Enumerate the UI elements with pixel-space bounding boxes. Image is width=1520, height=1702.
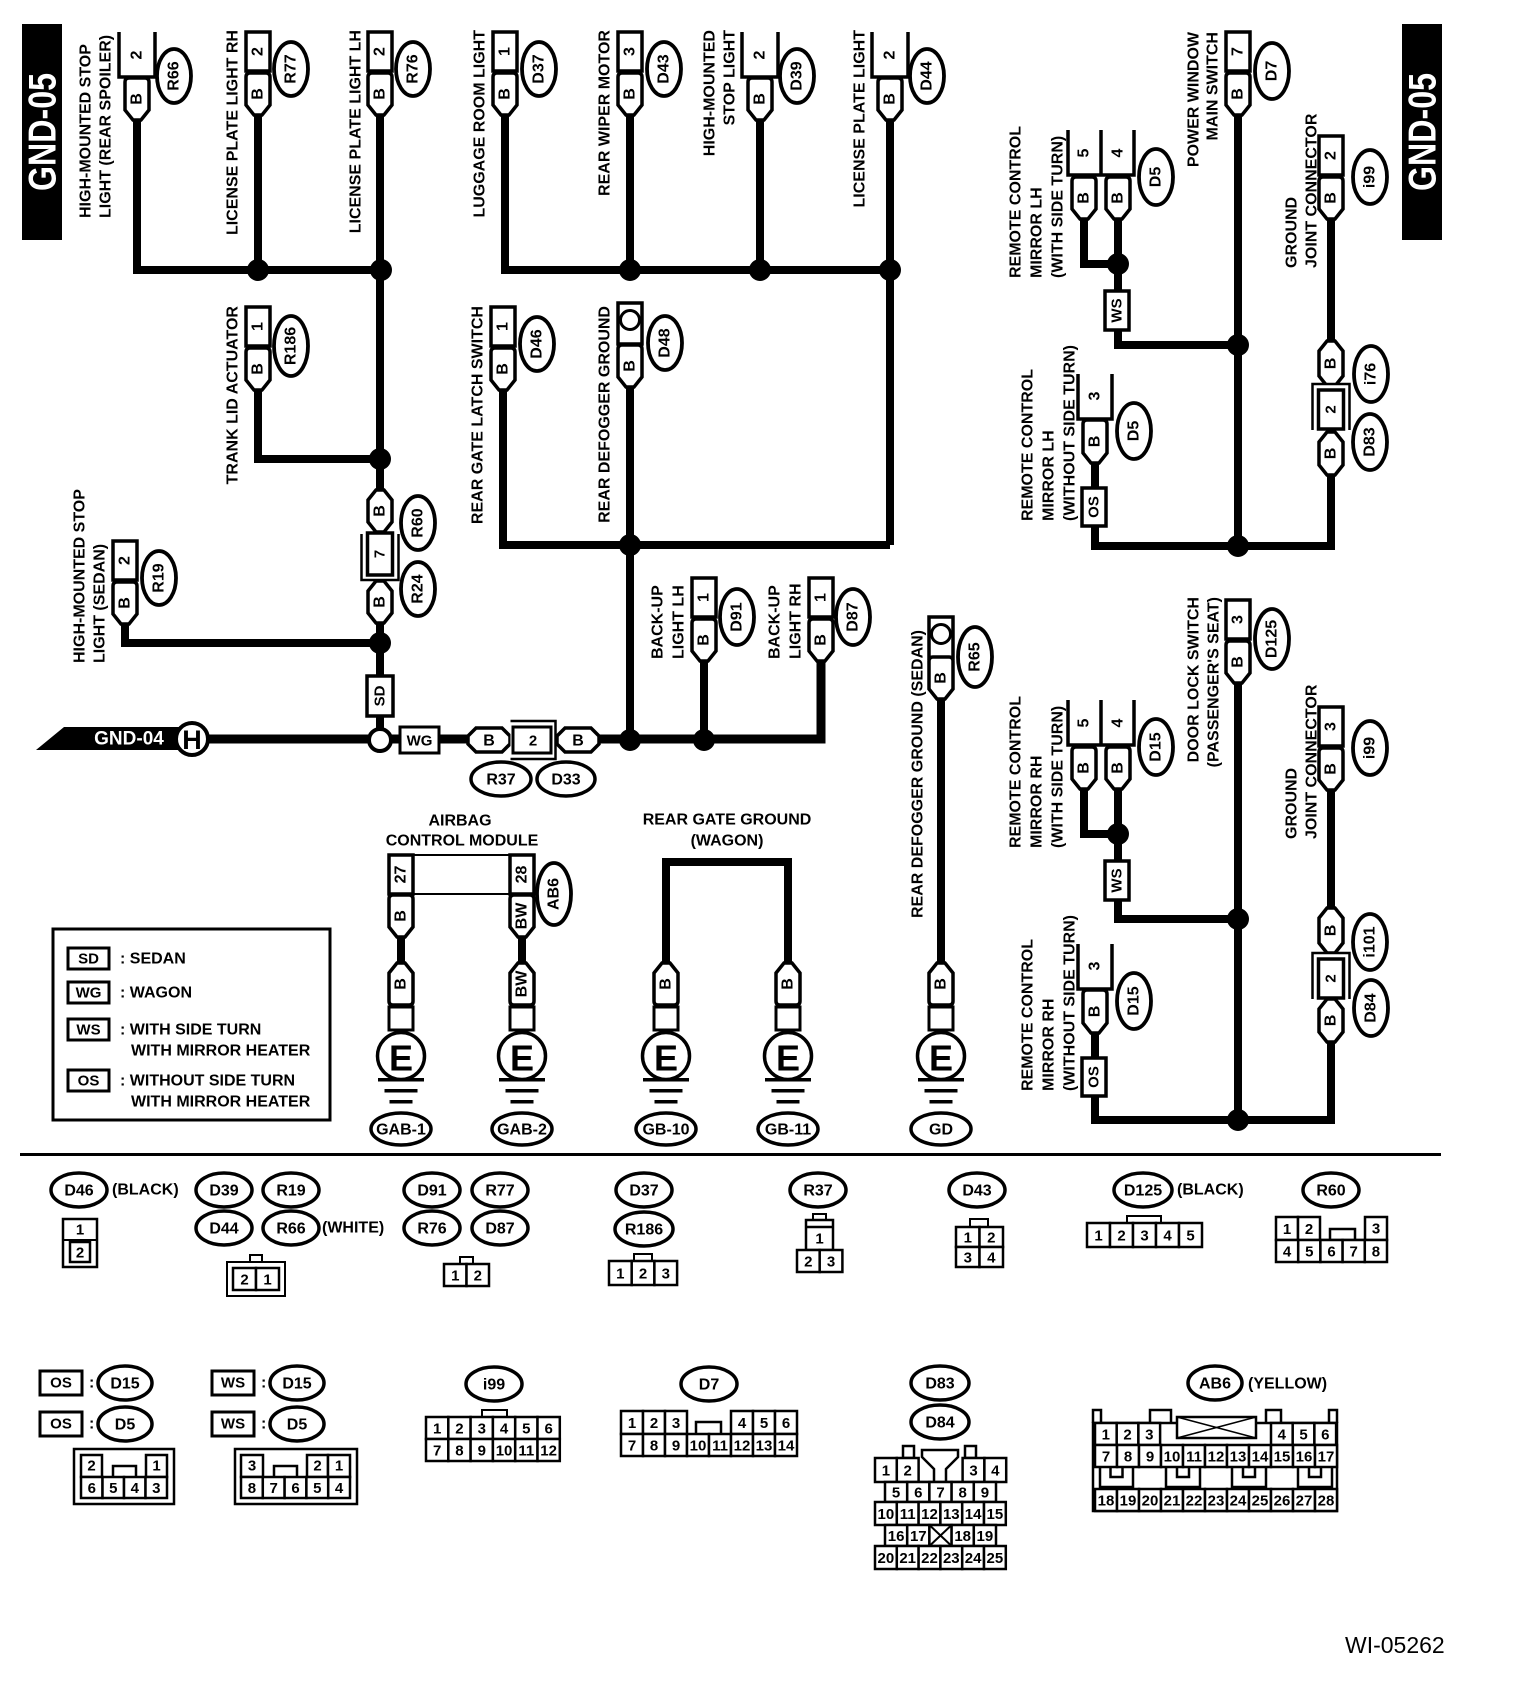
svg-text:WITH MIRROR HEATER: WITH MIRROR HEATER xyxy=(131,1094,311,1111)
svg-text:5: 5 xyxy=(1076,718,1093,727)
svg-text:i101: i101 xyxy=(1362,926,1379,957)
svg-text:3: 3 xyxy=(1230,615,1247,624)
svg-text:1: 1 xyxy=(696,593,713,602)
svg-text:28: 28 xyxy=(514,866,531,884)
svg-text:R60: R60 xyxy=(410,508,427,537)
svg-text:D87: D87 xyxy=(845,602,862,631)
svg-text:LIGHT (REAR SPOILER): LIGHT (REAR SPOILER) xyxy=(98,35,115,218)
svg-text:7: 7 xyxy=(372,550,389,558)
svg-text:20: 20 xyxy=(878,1550,895,1567)
svg-text:GND-05: GND-05 xyxy=(1402,73,1445,191)
svg-text:23: 23 xyxy=(943,1550,960,1567)
svg-text:WS: WS xyxy=(76,1022,100,1039)
svg-text:B: B xyxy=(1076,192,1093,204)
svg-text:i99: i99 xyxy=(1362,737,1379,759)
svg-text:4: 4 xyxy=(738,1415,747,1432)
svg-text:4: 4 xyxy=(335,1480,344,1497)
svg-text:GND-05: GND-05 xyxy=(22,73,65,191)
svg-text:: WITHOUT SIDE TURN: : WITHOUT SIDE TURN xyxy=(120,1073,295,1090)
svg-text:D5: D5 xyxy=(1148,167,1165,188)
svg-text:R77: R77 xyxy=(485,1183,514,1200)
svg-text:3: 3 xyxy=(969,1463,977,1480)
svg-text:WS: WS xyxy=(1109,868,1126,892)
svg-text:GB-10: GB-10 xyxy=(642,1122,689,1139)
svg-text:MIRROR RH: MIRROR RH xyxy=(1029,756,1046,848)
svg-text:4: 4 xyxy=(1110,718,1127,727)
svg-text:REAR DEFOGGER GROUND (SEDAN): REAR DEFOGGER GROUND (SEDAN) xyxy=(910,630,927,918)
svg-text:MIRROR RH: MIRROR RH xyxy=(1041,999,1058,1091)
svg-text:B: B xyxy=(1087,1006,1104,1018)
svg-text:WG: WG xyxy=(76,985,102,1002)
svg-text:REAR GATE GROUND: REAR GATE GROUND xyxy=(643,812,812,829)
svg-text:12: 12 xyxy=(921,1506,938,1523)
svg-text:(YELLOW): (YELLOW) xyxy=(1248,1376,1327,1393)
svg-text:MIRROR LH: MIRROR LH xyxy=(1029,187,1046,278)
svg-text:GAB-1: GAB-1 xyxy=(376,1122,426,1139)
svg-text:10: 10 xyxy=(690,1438,707,1455)
svg-text:16: 16 xyxy=(888,1528,905,1545)
svg-text:16: 16 xyxy=(1296,1449,1313,1466)
svg-text:3: 3 xyxy=(1140,1228,1148,1245)
svg-text:TRANK LID ACTUATOR: TRANK LID ACTUATOR xyxy=(225,306,242,485)
svg-text:R65: R65 xyxy=(967,642,984,671)
svg-text:D91: D91 xyxy=(729,602,746,631)
svg-text:B: B xyxy=(1230,88,1247,100)
svg-text:20: 20 xyxy=(1142,1493,1159,1510)
svg-text:B: B xyxy=(495,363,512,375)
svg-text:OS: OS xyxy=(78,1073,100,1090)
svg-text:(BLACK): (BLACK) xyxy=(112,1182,179,1199)
svg-text:2: 2 xyxy=(455,1421,463,1438)
svg-text:1: 1 xyxy=(964,1230,972,1247)
svg-text:D125: D125 xyxy=(1124,1183,1162,1200)
svg-text:2: 2 xyxy=(87,1458,95,1475)
svg-text:R76: R76 xyxy=(417,1221,446,1238)
svg-text:D125: D125 xyxy=(1264,620,1281,658)
svg-text:4: 4 xyxy=(1278,1427,1287,1444)
svg-text:5: 5 xyxy=(892,1485,900,1502)
svg-text:3: 3 xyxy=(478,1421,486,1438)
svg-text:REAR GATE LATCH SWITCH: REAR GATE LATCH SWITCH xyxy=(470,306,487,524)
svg-text:2: 2 xyxy=(650,1415,658,1432)
svg-text:GAB-2: GAB-2 xyxy=(497,1122,547,1139)
svg-text:E: E xyxy=(389,1038,413,1079)
svg-text:DOOR LOCK SWITCH: DOOR LOCK SWITCH xyxy=(1186,597,1203,762)
svg-text:B: B xyxy=(1323,763,1340,775)
svg-text:REMOTE CONTROL: REMOTE CONTROL xyxy=(1008,696,1025,848)
svg-text:B: B xyxy=(372,505,389,517)
svg-text:21: 21 xyxy=(1164,1493,1181,1510)
svg-text:POWER WINDOW: POWER WINDOW xyxy=(1186,31,1203,167)
svg-text:REMOTE CONTROL: REMOTE CONTROL xyxy=(1020,939,1037,1091)
svg-text:22: 22 xyxy=(921,1550,938,1567)
svg-text:B: B xyxy=(497,88,514,100)
svg-text:13: 13 xyxy=(1230,1449,1247,1466)
svg-text:2: 2 xyxy=(904,1463,912,1480)
svg-text:WG: WG xyxy=(407,733,433,750)
svg-text:H: H xyxy=(182,725,202,755)
svg-text:D46: D46 xyxy=(529,329,546,358)
svg-text:SD: SD xyxy=(78,951,99,968)
svg-text:25: 25 xyxy=(1252,1493,1269,1510)
svg-text:6: 6 xyxy=(1321,1427,1329,1444)
svg-text:8: 8 xyxy=(650,1438,658,1455)
svg-text:2: 2 xyxy=(129,50,146,59)
svg-text:10: 10 xyxy=(496,1443,513,1460)
svg-text:B: B xyxy=(572,733,584,750)
svg-text:BW: BW xyxy=(514,902,531,930)
svg-text:GND-04: GND-04 xyxy=(94,729,164,750)
svg-text:R66: R66 xyxy=(276,1221,305,1238)
svg-text:D15: D15 xyxy=(110,1376,139,1393)
svg-text:9: 9 xyxy=(1146,1449,1154,1466)
svg-text:3: 3 xyxy=(622,47,639,56)
svg-text:1: 1 xyxy=(815,1231,823,1248)
svg-text:21: 21 xyxy=(899,1550,916,1567)
svg-text:2: 2 xyxy=(240,1272,248,1289)
svg-text:GB-11: GB-11 xyxy=(765,1122,811,1139)
svg-text:D84: D84 xyxy=(925,1415,954,1432)
svg-text:28: 28 xyxy=(1318,1493,1335,1510)
svg-text:5: 5 xyxy=(760,1415,768,1432)
svg-text:1: 1 xyxy=(263,1272,271,1289)
svg-text:(BLACK): (BLACK) xyxy=(1177,1182,1244,1199)
svg-text:LUGGAGE ROOM LIGHT: LUGGAGE ROOM LIGHT xyxy=(472,30,489,218)
svg-text:3: 3 xyxy=(1323,722,1340,731)
svg-text:REMOTE CONTROL: REMOTE CONTROL xyxy=(1008,126,1025,278)
svg-text:1: 1 xyxy=(628,1415,636,1432)
svg-text:9: 9 xyxy=(981,1485,989,1502)
svg-text:12: 12 xyxy=(540,1443,557,1460)
svg-text:9: 9 xyxy=(672,1438,680,1455)
svg-text:1: 1 xyxy=(250,322,267,331)
svg-text:B: B xyxy=(933,672,950,684)
svg-text:2: 2 xyxy=(1305,1221,1313,1238)
svg-text:i99: i99 xyxy=(483,1377,505,1394)
svg-text:GROUND: GROUND xyxy=(1284,768,1301,839)
svg-text:B: B xyxy=(658,978,675,990)
svg-text:AB6: AB6 xyxy=(1199,1376,1231,1393)
svg-text:7: 7 xyxy=(1102,1449,1110,1466)
svg-text:LICENSE PLATE LIGHT LH: LICENSE PLATE LIGHT LH xyxy=(348,30,365,233)
svg-text::: : xyxy=(89,1416,94,1433)
svg-text:(WITHOUT SIDE TURN): (WITHOUT SIDE TURN) xyxy=(1062,345,1079,521)
svg-text:D44: D44 xyxy=(919,61,936,90)
svg-text:1: 1 xyxy=(497,47,514,56)
svg-text:CONTROL MODULE: CONTROL MODULE xyxy=(386,833,539,850)
svg-text:D7: D7 xyxy=(699,1377,720,1394)
svg-text:14: 14 xyxy=(1252,1449,1269,1466)
svg-text:B: B xyxy=(1230,656,1247,668)
svg-text:MAIN SWITCH: MAIN SWITCH xyxy=(1205,32,1222,140)
svg-text:GD: GD xyxy=(929,1122,953,1139)
svg-text:3: 3 xyxy=(827,1254,835,1271)
svg-text:26: 26 xyxy=(1274,1493,1291,1510)
svg-text:: WITH SIDE TURN: : WITH SIDE TURN xyxy=(120,1022,261,1039)
svg-text:E: E xyxy=(929,1038,953,1079)
svg-text:: SEDAN: : SEDAN xyxy=(120,951,186,968)
svg-text:17: 17 xyxy=(910,1528,927,1545)
svg-text:6: 6 xyxy=(291,1480,299,1497)
svg-text:R66: R66 xyxy=(166,61,183,90)
svg-text:10: 10 xyxy=(1164,1449,1181,1466)
svg-text:D37: D37 xyxy=(531,54,548,83)
svg-text:2: 2 xyxy=(639,1266,647,1283)
svg-text:8: 8 xyxy=(1372,1244,1380,1261)
svg-text:LICENSE PLATE LIGHT: LICENSE PLATE LIGHT xyxy=(852,30,869,208)
svg-text:B: B xyxy=(622,360,639,372)
svg-text:3: 3 xyxy=(248,1458,256,1475)
svg-text:GROUND: GROUND xyxy=(1284,197,1301,268)
svg-text:8: 8 xyxy=(455,1443,463,1460)
svg-text:D43: D43 xyxy=(962,1183,991,1200)
svg-text:1: 1 xyxy=(1102,1427,1110,1444)
svg-text:REAR WIPER MOTOR: REAR WIPER MOTOR xyxy=(597,30,614,196)
svg-text:2: 2 xyxy=(372,47,389,56)
svg-text:1: 1 xyxy=(813,593,830,602)
svg-text:D43: D43 xyxy=(656,54,673,83)
svg-text:1: 1 xyxy=(451,1268,459,1285)
svg-text:B: B xyxy=(393,910,410,922)
svg-text:HIGH-MOUNTED: HIGH-MOUNTED xyxy=(702,30,719,156)
svg-text:24: 24 xyxy=(965,1550,982,1567)
svg-text:B: B xyxy=(696,634,713,646)
svg-text:D87: D87 xyxy=(485,1221,514,1238)
svg-text:D39: D39 xyxy=(209,1183,238,1200)
svg-text:B: B xyxy=(622,88,639,100)
svg-text:6: 6 xyxy=(914,1485,922,1502)
svg-text:4: 4 xyxy=(1110,148,1127,157)
svg-text:11: 11 xyxy=(900,1506,916,1523)
svg-text:7: 7 xyxy=(270,1480,278,1497)
svg-text:5: 5 xyxy=(1305,1244,1313,1261)
svg-text:24: 24 xyxy=(1230,1493,1247,1510)
svg-text::: : xyxy=(261,1375,266,1392)
svg-text:: WAGON: : WAGON xyxy=(120,985,192,1002)
svg-text:27: 27 xyxy=(1296,1493,1313,1510)
svg-text:15: 15 xyxy=(987,1506,1004,1523)
svg-text:3: 3 xyxy=(964,1250,972,1267)
svg-text:B: B xyxy=(117,597,134,609)
svg-text:B: B xyxy=(813,634,830,646)
svg-text:5: 5 xyxy=(522,1421,530,1438)
svg-text:1: 1 xyxy=(1094,1228,1102,1245)
svg-text:9: 9 xyxy=(478,1443,486,1460)
svg-text:HIGH-MOUNTED STOP: HIGH-MOUNTED STOP xyxy=(72,489,89,663)
svg-text:2: 2 xyxy=(529,733,537,750)
svg-text:i99: i99 xyxy=(1362,166,1379,188)
svg-text:OS: OS xyxy=(50,1375,72,1392)
svg-text:1: 1 xyxy=(335,1458,343,1475)
svg-text:2: 2 xyxy=(250,47,267,56)
svg-text:(PASSENGER'S SEAT): (PASSENGER'S SEAT) xyxy=(1206,597,1223,767)
svg-text:8: 8 xyxy=(959,1485,967,1502)
svg-text:10: 10 xyxy=(878,1506,895,1523)
svg-text:2: 2 xyxy=(313,1458,321,1475)
svg-text:5: 5 xyxy=(1186,1228,1194,1245)
svg-text:2: 2 xyxy=(1117,1228,1125,1245)
svg-text:B: B xyxy=(1323,358,1340,370)
svg-text:i76: i76 xyxy=(1363,363,1380,385)
svg-text:B: B xyxy=(372,88,389,100)
svg-text:4: 4 xyxy=(991,1463,1000,1480)
svg-text:2: 2 xyxy=(1123,1427,1131,1444)
svg-text:6: 6 xyxy=(544,1421,552,1438)
svg-text:B: B xyxy=(250,363,267,375)
svg-text:12: 12 xyxy=(1208,1449,1225,1466)
svg-text:WS: WS xyxy=(221,1416,245,1433)
svg-text:B: B xyxy=(483,733,495,750)
svg-text:HIGH-MOUNTED STOP: HIGH-MOUNTED STOP xyxy=(78,44,95,218)
svg-text:E: E xyxy=(654,1038,678,1079)
svg-text:7: 7 xyxy=(1350,1244,1358,1261)
svg-text:D91: D91 xyxy=(417,1183,446,1200)
svg-text:D83: D83 xyxy=(1362,427,1379,456)
svg-text:OS: OS xyxy=(1086,1066,1103,1088)
svg-text:D46: D46 xyxy=(64,1183,93,1200)
svg-text:8: 8 xyxy=(1124,1449,1132,1466)
svg-text:WI-05262: WI-05262 xyxy=(1345,1632,1445,1658)
svg-text:13: 13 xyxy=(756,1438,773,1455)
svg-text:E: E xyxy=(776,1038,800,1079)
svg-text:11: 11 xyxy=(1186,1449,1202,1466)
svg-text:17: 17 xyxy=(1318,1449,1335,1466)
svg-text:(WHITE): (WHITE) xyxy=(322,1220,384,1237)
svg-text:D15: D15 xyxy=(1126,986,1143,1015)
svg-text:3: 3 xyxy=(1145,1427,1153,1444)
svg-text::: : xyxy=(261,1416,266,1433)
svg-text:D37: D37 xyxy=(629,1183,658,1200)
svg-text:18: 18 xyxy=(1098,1493,1115,1510)
svg-text:1: 1 xyxy=(1283,1221,1291,1238)
svg-text:18: 18 xyxy=(954,1528,971,1545)
svg-text:WS: WS xyxy=(221,1375,245,1392)
svg-text:D33: D33 xyxy=(551,772,580,789)
svg-text:R24: R24 xyxy=(410,574,427,603)
svg-text:14: 14 xyxy=(965,1506,982,1523)
svg-text:LIGHT RH: LIGHT RH xyxy=(788,583,805,659)
svg-text:5: 5 xyxy=(1076,148,1093,157)
svg-text:12: 12 xyxy=(734,1438,751,1455)
svg-text:2: 2 xyxy=(1323,974,1340,982)
svg-text:15: 15 xyxy=(1274,1449,1291,1466)
svg-text:B: B xyxy=(1323,1015,1340,1027)
svg-text:B: B xyxy=(393,978,410,990)
svg-text:D48: D48 xyxy=(657,328,674,357)
svg-text:1: 1 xyxy=(433,1421,441,1438)
svg-text:3: 3 xyxy=(1372,1221,1380,1238)
svg-text:D5: D5 xyxy=(287,1417,308,1434)
svg-text:2: 2 xyxy=(804,1254,812,1271)
svg-text:B: B xyxy=(1110,192,1127,204)
svg-text:MIRROR LH: MIRROR LH xyxy=(1041,430,1058,521)
svg-text:7: 7 xyxy=(936,1485,944,1502)
svg-text:7: 7 xyxy=(433,1443,441,1460)
svg-text:4: 4 xyxy=(131,1480,140,1497)
svg-text:B: B xyxy=(129,93,146,105)
svg-text:(WITH SIDE TURN): (WITH SIDE TURN) xyxy=(1050,136,1067,278)
svg-text:B: B xyxy=(372,596,389,608)
svg-text::: : xyxy=(89,1375,94,1392)
svg-text:2: 2 xyxy=(1323,151,1340,160)
svg-text:D84: D84 xyxy=(1363,993,1380,1022)
svg-text:2: 2 xyxy=(1323,405,1340,413)
svg-text:3: 3 xyxy=(662,1266,670,1283)
svg-text:SD: SD xyxy=(372,685,389,706)
svg-text:5: 5 xyxy=(1299,1427,1307,1444)
svg-text:22: 22 xyxy=(1186,1493,1203,1510)
svg-text:4: 4 xyxy=(1163,1228,1172,1245)
svg-text:R77: R77 xyxy=(283,54,300,83)
svg-text:D15: D15 xyxy=(1148,732,1165,761)
svg-text:1: 1 xyxy=(152,1458,160,1475)
svg-text:1: 1 xyxy=(616,1266,624,1283)
svg-text:B: B xyxy=(933,978,950,990)
svg-text:6: 6 xyxy=(1327,1244,1335,1261)
svg-text:LIGHT (SEDAN): LIGHT (SEDAN) xyxy=(92,544,109,663)
svg-text:B: B xyxy=(250,88,267,100)
svg-text:OS: OS xyxy=(50,1416,72,1433)
svg-text:D7: D7 xyxy=(1264,61,1281,82)
svg-text:D5: D5 xyxy=(1126,421,1143,442)
svg-text:BACK-UP: BACK-UP xyxy=(650,585,667,659)
svg-text:B: B xyxy=(1323,192,1340,204)
svg-text:R186: R186 xyxy=(625,1222,663,1239)
svg-text:STOP LIGHT: STOP LIGHT xyxy=(722,30,739,126)
svg-text:OS: OS xyxy=(1086,496,1103,518)
svg-text:E: E xyxy=(510,1038,534,1079)
svg-text:B: B xyxy=(1110,762,1127,774)
svg-text:23: 23 xyxy=(1208,1493,1225,1510)
svg-text:D44: D44 xyxy=(209,1221,238,1238)
svg-text:2: 2 xyxy=(752,50,769,59)
svg-text:R60: R60 xyxy=(1316,1183,1345,1200)
svg-text:R37: R37 xyxy=(803,1183,832,1200)
svg-text:1: 1 xyxy=(495,322,512,331)
svg-text:3: 3 xyxy=(1087,961,1104,970)
svg-text:19: 19 xyxy=(1120,1493,1137,1510)
svg-text:WITH MIRROR HEATER: WITH MIRROR HEATER xyxy=(131,1043,311,1060)
svg-text:B: B xyxy=(882,93,899,105)
svg-text:BACK-UP: BACK-UP xyxy=(767,585,784,659)
svg-text:(WITH SIDE TURN): (WITH SIDE TURN) xyxy=(1050,706,1067,848)
svg-text:2: 2 xyxy=(474,1268,482,1285)
svg-text:B: B xyxy=(1087,436,1104,448)
svg-text:13: 13 xyxy=(943,1506,960,1523)
svg-text:27: 27 xyxy=(393,866,410,884)
svg-text:14: 14 xyxy=(778,1438,795,1455)
svg-text:2: 2 xyxy=(117,556,134,565)
svg-text:4: 4 xyxy=(987,1250,996,1267)
svg-text:2: 2 xyxy=(76,1245,84,1262)
svg-text:11: 11 xyxy=(712,1438,728,1455)
svg-text:R37: R37 xyxy=(486,772,515,789)
svg-text:4: 4 xyxy=(1283,1244,1292,1261)
svg-text:5: 5 xyxy=(109,1480,117,1497)
svg-text:6: 6 xyxy=(782,1415,790,1432)
svg-text:19: 19 xyxy=(977,1528,994,1545)
svg-text:R19: R19 xyxy=(276,1183,305,1200)
svg-text:R76: R76 xyxy=(405,54,422,83)
svg-text:B: B xyxy=(1323,448,1340,460)
svg-text:B: B xyxy=(780,978,797,990)
svg-text:8: 8 xyxy=(248,1480,256,1497)
svg-text:7: 7 xyxy=(1230,47,1247,56)
svg-text:D15: D15 xyxy=(282,1376,311,1393)
svg-text:4: 4 xyxy=(500,1421,509,1438)
svg-text:D5: D5 xyxy=(115,1417,136,1434)
svg-text:(WITHOUT SIDE TURN): (WITHOUT SIDE TURN) xyxy=(1062,915,1079,1091)
